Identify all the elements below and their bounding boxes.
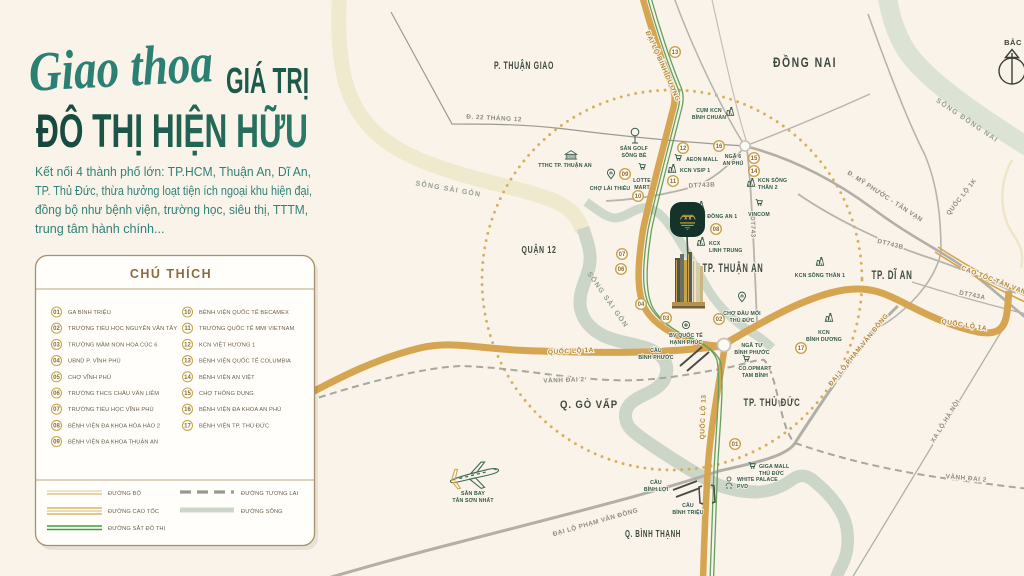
svg-text:02: 02 [53,326,60,332]
svg-text:05: 05 [53,375,60,381]
svg-text:CHÚ THÍCH: CHÚ THÍCH [130,266,212,281]
svg-text:08: 08 [53,423,60,429]
svg-text:TRƯỜNG TIỂU HỌC NGUYỄN VĂN TÂY: TRƯỜNG TIỂU HỌC NGUYỄN VĂN TÂY [68,325,177,332]
svg-text:CO.OPMART: CO.OPMART [738,366,772,372]
svg-text:TÂN SƠN NHẤT: TÂN SƠN NHẤT [452,497,494,504]
svg-text:16: 16 [184,407,191,413]
svg-text:ĐƯỜNG BỘ: ĐƯỜNG BỘ [108,490,141,497]
svg-text:TTHC TP. THUẬN AN: TTHC TP. THUẬN AN [538,162,592,169]
svg-text:GIÁ TRỊ: GIÁ TRỊ [226,60,309,101]
svg-text:Q. BÌNH THẠNH: Q. BÌNH THẠNH [625,527,681,540]
svg-text:P. THUẬN GIAO: P. THUẬN GIAO [494,59,554,72]
svg-text:01: 01 [732,442,739,448]
svg-text:CHỢ THÔNG DỤNG: CHỢ THÔNG DỤNG [199,390,254,397]
svg-text:VINCOM: VINCOM [748,212,770,218]
svg-text:LOTTE: LOTTE [633,178,651,184]
svg-text:01: 01 [53,310,60,316]
svg-text:CHỢ ĐẦU MỐI: CHỢ ĐẦU MỐI [723,310,761,317]
svg-text:THỦ ĐỨC: THỦ ĐỨC [730,317,755,324]
svg-text:KCN: KCN [818,330,830,336]
svg-text:TRƯỜNG QUỐC TẾ MMI VIETNAM: TRƯỜNG QUỐC TẾ MMI VIETNAM [199,325,294,332]
svg-text:UBND P. VĨNH PHÚ: UBND P. VĨNH PHÚ [68,358,121,365]
svg-text:06: 06 [53,391,60,397]
svg-text:Giao thoa: Giao thoa [27,32,214,104]
svg-text:ĐƯỜNG SÔNG: ĐƯỜNG SÔNG [241,508,283,515]
svg-text:07: 07 [619,252,626,258]
svg-text:MART: MART [634,185,650,191]
svg-text:10: 10 [184,310,191,316]
svg-text:BỆNH VIỆN ĐA KHOA AN PHÚ: BỆNH VIỆN ĐA KHOA AN PHÚ [199,405,281,413]
svg-text:BỆNH VIỆN ĐA KHOA THUẬN AN: BỆNH VIỆN ĐA KHOA THUẬN AN [68,438,158,446]
svg-text:04: 04 [53,359,60,365]
svg-text:CẦU: CẦU [650,347,662,354]
svg-text:03: 03 [663,316,670,322]
svg-text:GIGA MALL: GIGA MALL [759,464,790,470]
svg-text:CHỢ VĨNH PHÚ: CHỢ VĨNH PHÚ [68,374,111,381]
svg-text:ĐƯỜNG SẮT ĐÔ THỊ: ĐƯỜNG SẮT ĐÔ THỊ [108,524,166,532]
svg-text:13: 13 [672,50,679,56]
svg-text:14: 14 [184,375,191,381]
svg-text:BÌNH TRIỆU: BÌNH TRIỆU [672,508,703,516]
svg-text:Q. GÒ VẤP: Q. GÒ VẤP [560,398,618,411]
svg-text:17: 17 [798,346,805,352]
svg-text:CẦU: CẦU [682,502,694,509]
svg-text:KCN SÔNG: KCN SÔNG [758,176,787,184]
svg-text:TP. THỦ ĐỨC: TP. THỦ ĐỨC [744,396,801,409]
svg-text:WHITE PALACE: WHITE PALACE [737,477,778,483]
svg-text:KCX: KCX [709,241,721,247]
svg-text:BV QUỐC TẾ: BV QUỐC TẾ [669,332,703,339]
svg-text:SÔNG BÉ: SÔNG BÉ [622,151,647,159]
svg-text:GA BÌNH TRIỆU: GA BÌNH TRIỆU [68,308,111,316]
svg-text:06: 06 [618,267,625,273]
svg-text:BÌNH LỢI: BÌNH LỢI [644,485,669,493]
svg-text:09: 09 [622,172,629,178]
svg-text:BÌNH PHƯỚC: BÌNH PHƯỚC [638,353,673,361]
svg-text:SÂN BAY: SÂN BAY [461,490,485,497]
svg-text:AN PHÚ: AN PHÚ [723,160,744,167]
svg-text:TRƯỜNG MẦM NON HOA CÚC 6: TRƯỜNG MẦM NON HOA CÚC 6 [68,341,158,348]
svg-text:09: 09 [53,440,60,446]
svg-text:TRƯỜNG THCS CHÂU VĂN LIÊM: TRƯỜNG THCS CHÂU VĂN LIÊM [68,389,159,397]
svg-text:đồng bộ như bệnh viện, trường: đồng bộ như bệnh viện, trường học, siêu … [35,203,308,217]
svg-text:04: 04 [638,302,645,308]
svg-text:ĐÔ THỊ HIỆN HỮU: ĐÔ THỊ HIỆN HỮU [36,104,308,157]
svg-text:THẦN 2: THẦN 2 [758,184,778,191]
svg-text:14: 14 [751,169,758,175]
svg-text:TRƯỜNG TIỂU HỌC VĨNH PHÚ: TRƯỜNG TIỂU HỌC VĨNH PHÚ [68,406,154,413]
svg-text:SÂN GOLF: SÂN GOLF [620,145,648,152]
svg-text:trung tâm hành chính...: trung tâm hành chính... [35,222,165,236]
svg-text:12: 12 [184,342,191,348]
svg-text:11: 11 [184,326,191,332]
svg-text:AEON MALL: AEON MALL [686,157,719,163]
svg-text:DT743B: DT743B [688,181,715,189]
svg-text:03: 03 [53,342,60,348]
svg-text:PVD: PVD [737,484,748,490]
svg-text:ĐỒNG NAI: ĐỒNG NAI [773,53,837,70]
svg-text:BẮC: BẮC [1004,38,1022,47]
svg-text:TP. Thủ Đức, thừa hưởng loạt t: TP. Thủ Đức, thừa hưởng loạt tiện ích ng… [35,184,312,198]
svg-text:ĐƯỜNG TƯƠNG LAI: ĐƯỜNG TƯƠNG LAI [241,490,299,497]
svg-text:07: 07 [53,407,60,413]
svg-text:02: 02 [716,317,723,323]
svg-text:BỆNH VIỆN ĐA KHOA HÒA HẢO 2: BỆNH VIỆN ĐA KHOA HÒA HẢO 2 [68,421,160,429]
svg-text:16: 16 [716,144,723,150]
svg-text:BỆNH VIỆN TP. THỦ ĐỨC: BỆNH VIỆN TP. THỦ ĐỨC [199,421,269,429]
svg-text:TP. THUẬN AN: TP. THUẬN AN [703,260,764,275]
svg-text:10: 10 [635,194,642,200]
svg-text:15: 15 [751,156,758,162]
svg-text:BỆNH VIỆN AN VIỆT: BỆNH VIỆN AN VIỆT [199,373,255,381]
svg-text:TAM BÌNH: TAM BÌNH [742,371,768,379]
svg-text:ĐƯỜNG CAO TỐC: ĐƯỜNG CAO TỐC [108,508,159,515]
svg-text:QUẬN 12: QUẬN 12 [522,243,557,256]
svg-text:BÌNH CHUẨN: BÌNH CHUẨN [692,113,726,121]
svg-text:13: 13 [184,359,191,365]
svg-text:CHỢ LÁI THIÊU: CHỢ LÁI THIÊU [590,184,631,192]
svg-text:CỤM KCN: CỤM KCN [696,108,722,114]
svg-text:DT743: DT743 [749,216,757,238]
svg-text:NGÃ TƯ: NGÃ TƯ [741,342,763,349]
svg-text:HẠNH PHÚC: HẠNH PHÚC [670,339,703,346]
svg-text:Kết nối 4 thành phố lớn: TP.HC: Kết nối 4 thành phố lớn: TP.HCM, Thuận A… [35,165,311,179]
svg-text:KCN VSIP 1: KCN VSIP 1 [680,168,710,174]
svg-text:BỆNH VIỆN QUỐC TẾ COLUMBIA: BỆNH VIỆN QUỐC TẾ COLUMBIA [199,357,291,365]
svg-text:08: 08 [713,227,720,233]
svg-text:11: 11 [670,179,677,185]
svg-text:LINH TRUNG: LINH TRUNG [709,248,743,254]
svg-text:BÌNH PHƯỚC: BÌNH PHƯỚC [734,348,769,356]
svg-text:KCN SÔNG THẦN 1: KCN SÔNG THẦN 1 [795,271,845,279]
svg-text:KCN VIỆT HƯƠNG 1: KCN VIỆT HƯƠNG 1 [199,340,255,348]
svg-text:CẦU: CẦU [650,479,662,486]
svg-text:BỆNH VIỆN QUỐC TẾ BECAMEX: BỆNH VIỆN QUỐC TẾ BECAMEX [199,308,289,316]
svg-text:TP. DĨ AN: TP. DĨ AN [872,267,913,282]
svg-text:NGÃ 6: NGÃ 6 [725,153,742,160]
svg-text:12: 12 [680,146,687,152]
svg-text:15: 15 [184,391,191,397]
svg-text:BÌNH DƯƠNG: BÌNH DƯƠNG [806,335,842,343]
svg-text:17: 17 [184,423,191,429]
